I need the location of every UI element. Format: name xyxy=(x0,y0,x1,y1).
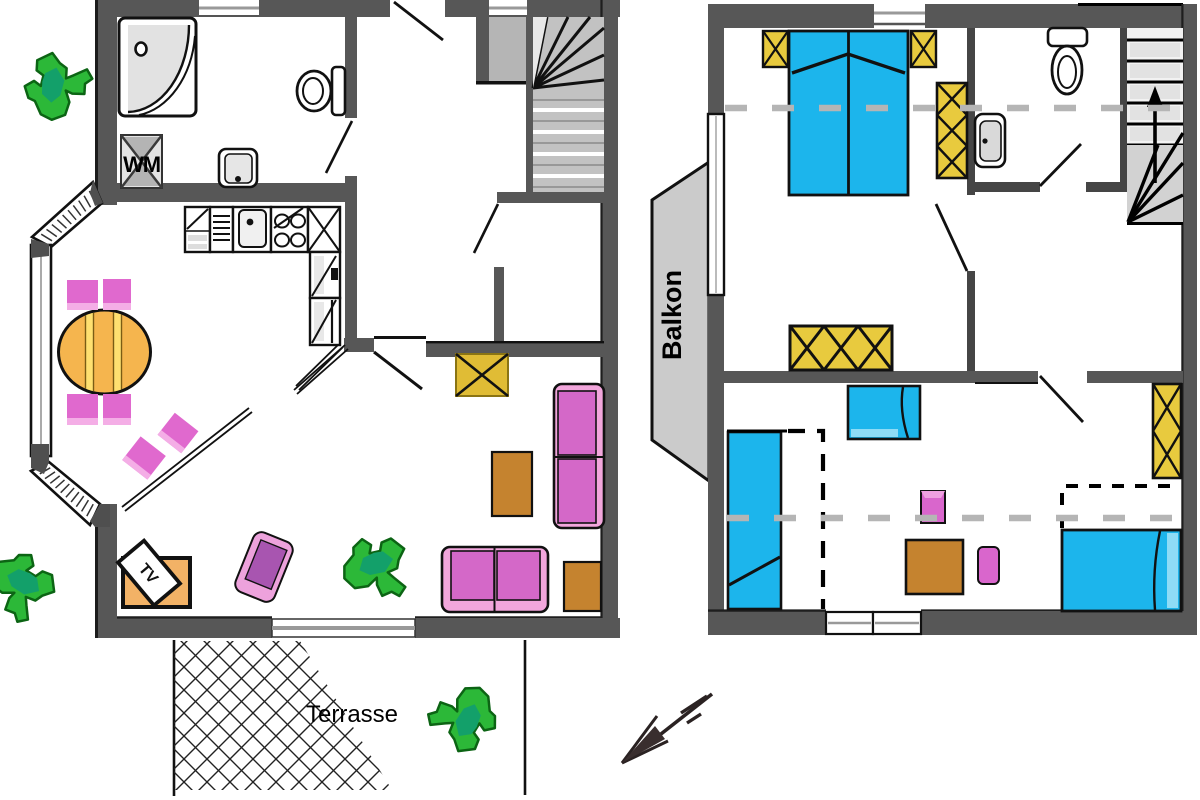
svg-text:WM: WM xyxy=(123,152,160,177)
svg-text:Terrasse: Terrasse xyxy=(306,701,398,728)
svg-text:Balkon: Balkon xyxy=(657,270,687,360)
